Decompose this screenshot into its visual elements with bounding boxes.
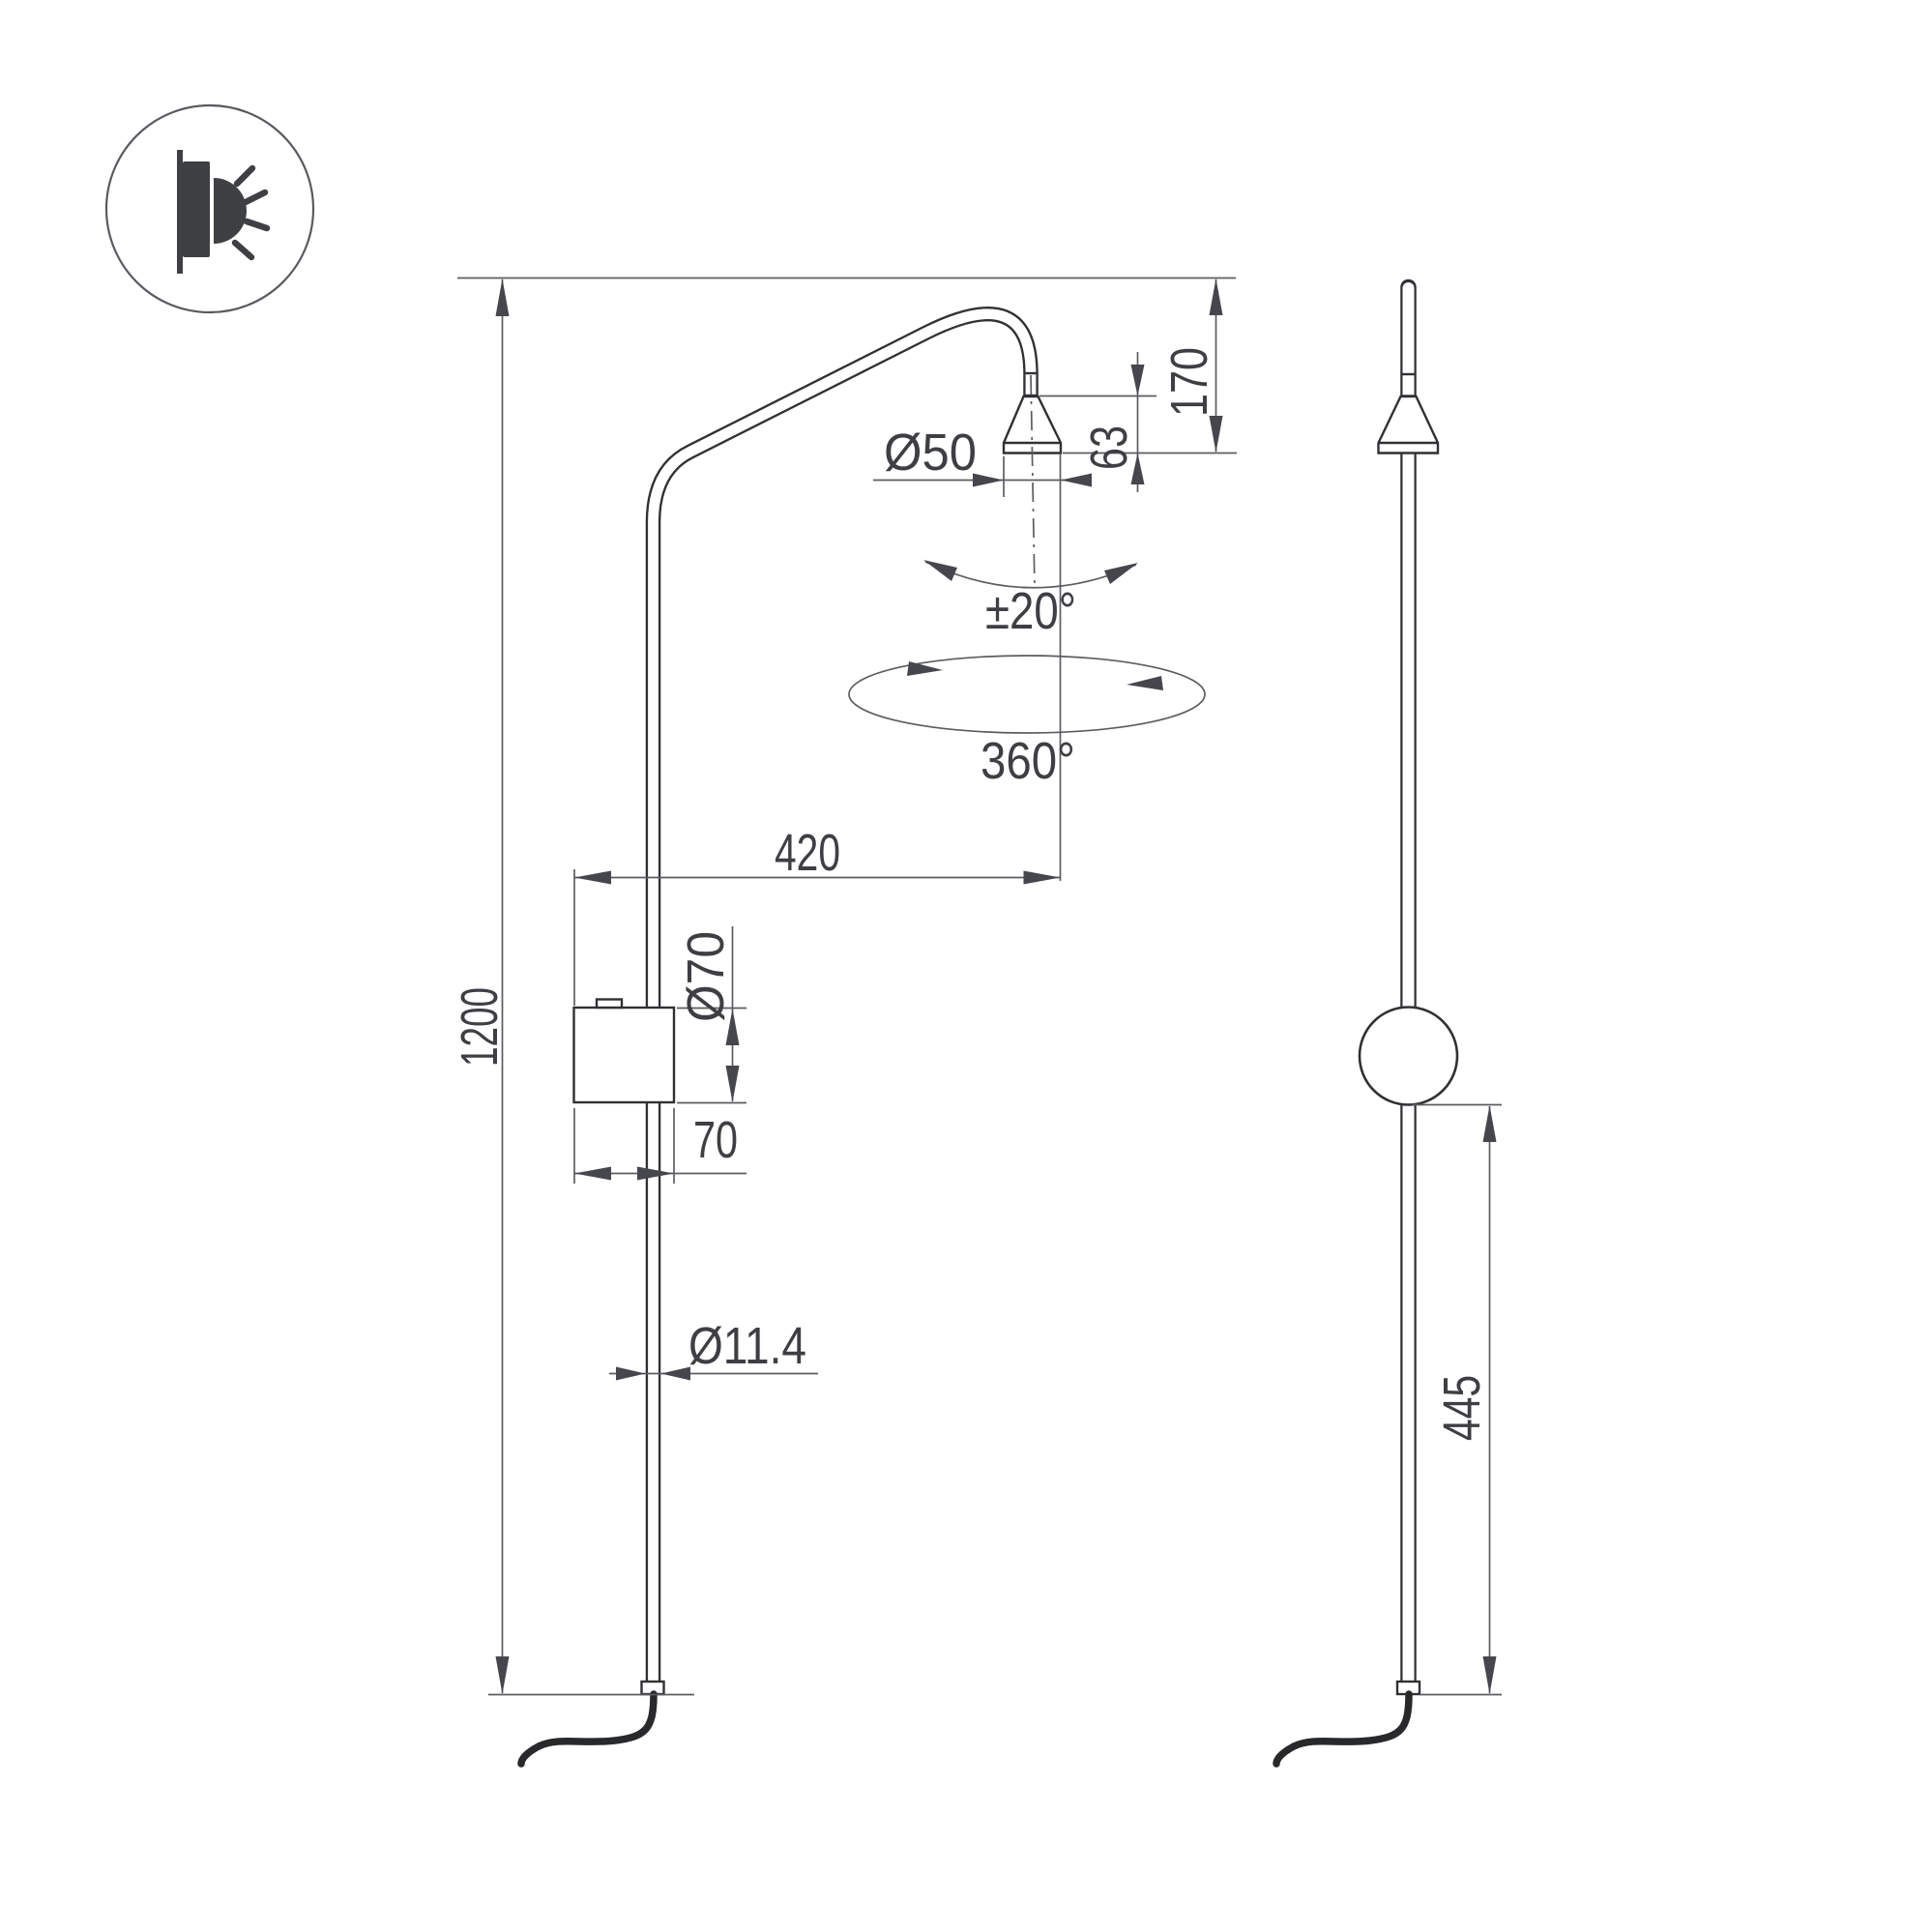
arrowhead-up bbox=[1210, 278, 1223, 315]
canopy-switch-tab bbox=[597, 1000, 622, 1009]
arrowhead-left bbox=[574, 871, 611, 885]
side-view bbox=[521, 314, 1061, 1764]
dimension-label-lower-section: 445 bbox=[1433, 1375, 1491, 1441]
dimension-label-rotation-range: 360° bbox=[981, 732, 1075, 790]
wall-light-icon bbox=[106, 105, 313, 312]
arrowhead-down bbox=[496, 1656, 510, 1694]
arrowhead-right bbox=[973, 474, 1004, 487]
icon-wall-line bbox=[177, 150, 183, 274]
dimension-label-tilt-range: ±20° bbox=[985, 582, 1076, 640]
arrowhead-left bbox=[661, 1367, 691, 1381]
power-cable bbox=[1276, 1694, 1409, 1764]
wall-canopy-circle bbox=[1360, 1008, 1457, 1105]
dimension-label-overall-height: 1200 bbox=[451, 987, 509, 1067]
arrowhead-down bbox=[1131, 365, 1145, 396]
arrowhead-left bbox=[1127, 676, 1163, 690]
arrowhead-right bbox=[1024, 871, 1061, 885]
lamp-head-cone bbox=[1379, 396, 1439, 454]
dimension-label-head-diameter: Ø50 bbox=[884, 424, 977, 482]
dimension-label-canopy-diameter: Ø70 bbox=[677, 931, 735, 1022]
arrowhead-up-right bbox=[1104, 563, 1138, 584]
front-view bbox=[1276, 287, 1457, 1764]
arrowhead-right bbox=[616, 1367, 646, 1381]
icon-lamp-plate bbox=[183, 161, 210, 257]
arrowhead-up-left bbox=[923, 560, 957, 581]
icon-lamp-halfdome bbox=[214, 178, 247, 244]
lamp-dimension-drawing: 1200 420 Ø50 63 170 ±20° bbox=[0, 0, 1932, 1932]
dimension-label-head-height: 63 bbox=[1080, 425, 1138, 470]
dimension-label-canopy-depth: 70 bbox=[693, 1111, 738, 1169]
dimension-label-arm-projection: 420 bbox=[775, 824, 840, 882]
arrowhead-right bbox=[907, 661, 943, 676]
arrowhead-down bbox=[1210, 416, 1223, 453]
dimension-label-pole-diameter: Ø11.4 bbox=[688, 1317, 806, 1375]
power-cable bbox=[521, 1694, 654, 1764]
arrowhead-up bbox=[1483, 1105, 1497, 1142]
arrowhead-left bbox=[1061, 474, 1092, 487]
arrowhead-down bbox=[1483, 1656, 1497, 1694]
arrowhead-up bbox=[496, 278, 510, 316]
arrowhead-left bbox=[574, 1167, 611, 1181]
rotation-ellipse bbox=[849, 656, 1205, 733]
wall-canopy-box bbox=[574, 1008, 675, 1102]
technical-drawing-page: 1200 420 Ø50 63 170 ±20° bbox=[0, 0, 1932, 1932]
dimension-label-head-offset: 170 bbox=[1160, 347, 1218, 417]
arrowhead-down bbox=[726, 1066, 740, 1102]
dimension-annotations: 1200 420 Ø50 63 170 ±20° bbox=[451, 278, 1502, 1695]
